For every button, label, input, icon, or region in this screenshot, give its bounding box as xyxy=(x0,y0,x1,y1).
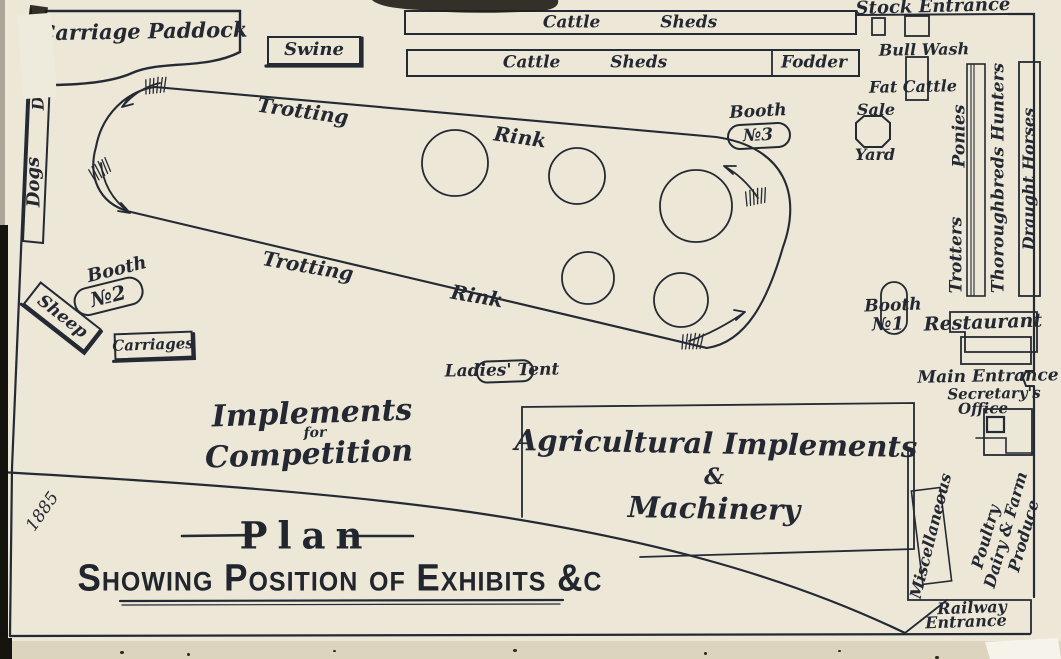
trotting-label-top: Trotting xyxy=(256,95,350,128)
scan-speck xyxy=(838,650,841,652)
scan-speck xyxy=(333,650,336,652)
booth3-label: Booth xyxy=(729,102,787,122)
agricultural-line2: & xyxy=(704,466,724,488)
booth2-number: №2 xyxy=(88,282,127,310)
yard-label: Yard xyxy=(855,147,895,163)
scan-damage-patch xyxy=(17,13,57,99)
swine-label: Swine xyxy=(284,41,344,59)
restaurant-label: Restaurant xyxy=(924,311,1043,334)
rink-label-top: Rink xyxy=(493,123,548,150)
trotting-label-bottom: Trotting xyxy=(261,248,355,284)
fat-cattle-label: Fat Cattle xyxy=(869,78,957,96)
trotters-label: Trotters xyxy=(949,217,966,294)
sheep-label: Sheep xyxy=(34,292,90,341)
ladies-tent-label: Ladies' Tent xyxy=(445,362,560,381)
rink-label-bottom: Rink xyxy=(449,282,504,311)
bull-wash-label: Bull Wash xyxy=(879,41,970,59)
agricultural-line1: Agricultural Implements xyxy=(515,426,918,462)
cattle-sheds-lower-label: Cattle Sheds xyxy=(503,55,667,72)
cattle-sheds-upper-label: Cattle Sheds xyxy=(543,15,717,32)
agricultural-line3: Machinery xyxy=(628,493,801,525)
booth1-number: №1 xyxy=(872,315,905,334)
carriage-paddock-label: Carriage Paddock xyxy=(38,19,247,44)
scan-speck xyxy=(120,651,124,654)
office-label: Office xyxy=(958,401,1008,417)
scan-speck xyxy=(704,652,707,655)
year-annotation: 1885 xyxy=(24,489,63,534)
implements-line3: Competition xyxy=(205,436,414,473)
booth1-label: Booth xyxy=(864,297,922,316)
scan-speck xyxy=(187,653,190,656)
sale-label: Sale xyxy=(857,102,895,118)
stock-entrance-label: Stock Entrance xyxy=(855,0,1010,18)
booth3-number: №3 xyxy=(742,127,773,146)
carriages-label: Carriages xyxy=(112,336,194,354)
plan-subtitle: Showing Position of Exhibits &c xyxy=(78,559,603,597)
map-labels: Carriage Paddock Swine Cattle Sheds Catt… xyxy=(0,0,1061,659)
thoroughbreds-hunters-label: Thoroughbreds Hunters xyxy=(991,63,1008,293)
scan-speck xyxy=(513,649,517,652)
exhibition-plan-map: Carriage Paddock Swine Cattle Sheds Catt… xyxy=(0,0,1061,659)
draught-horses-label: Draught Horses xyxy=(1021,108,1037,251)
plan-title: Plan xyxy=(240,518,373,555)
ponies-label: Ponies xyxy=(952,105,969,168)
fodder-label: Fodder xyxy=(781,55,847,72)
railway-entrance-line2: Entrance xyxy=(925,613,1007,632)
dogs-label: Dogs xyxy=(25,157,44,208)
miscellaneous-label: Miscellaneous xyxy=(908,472,955,600)
